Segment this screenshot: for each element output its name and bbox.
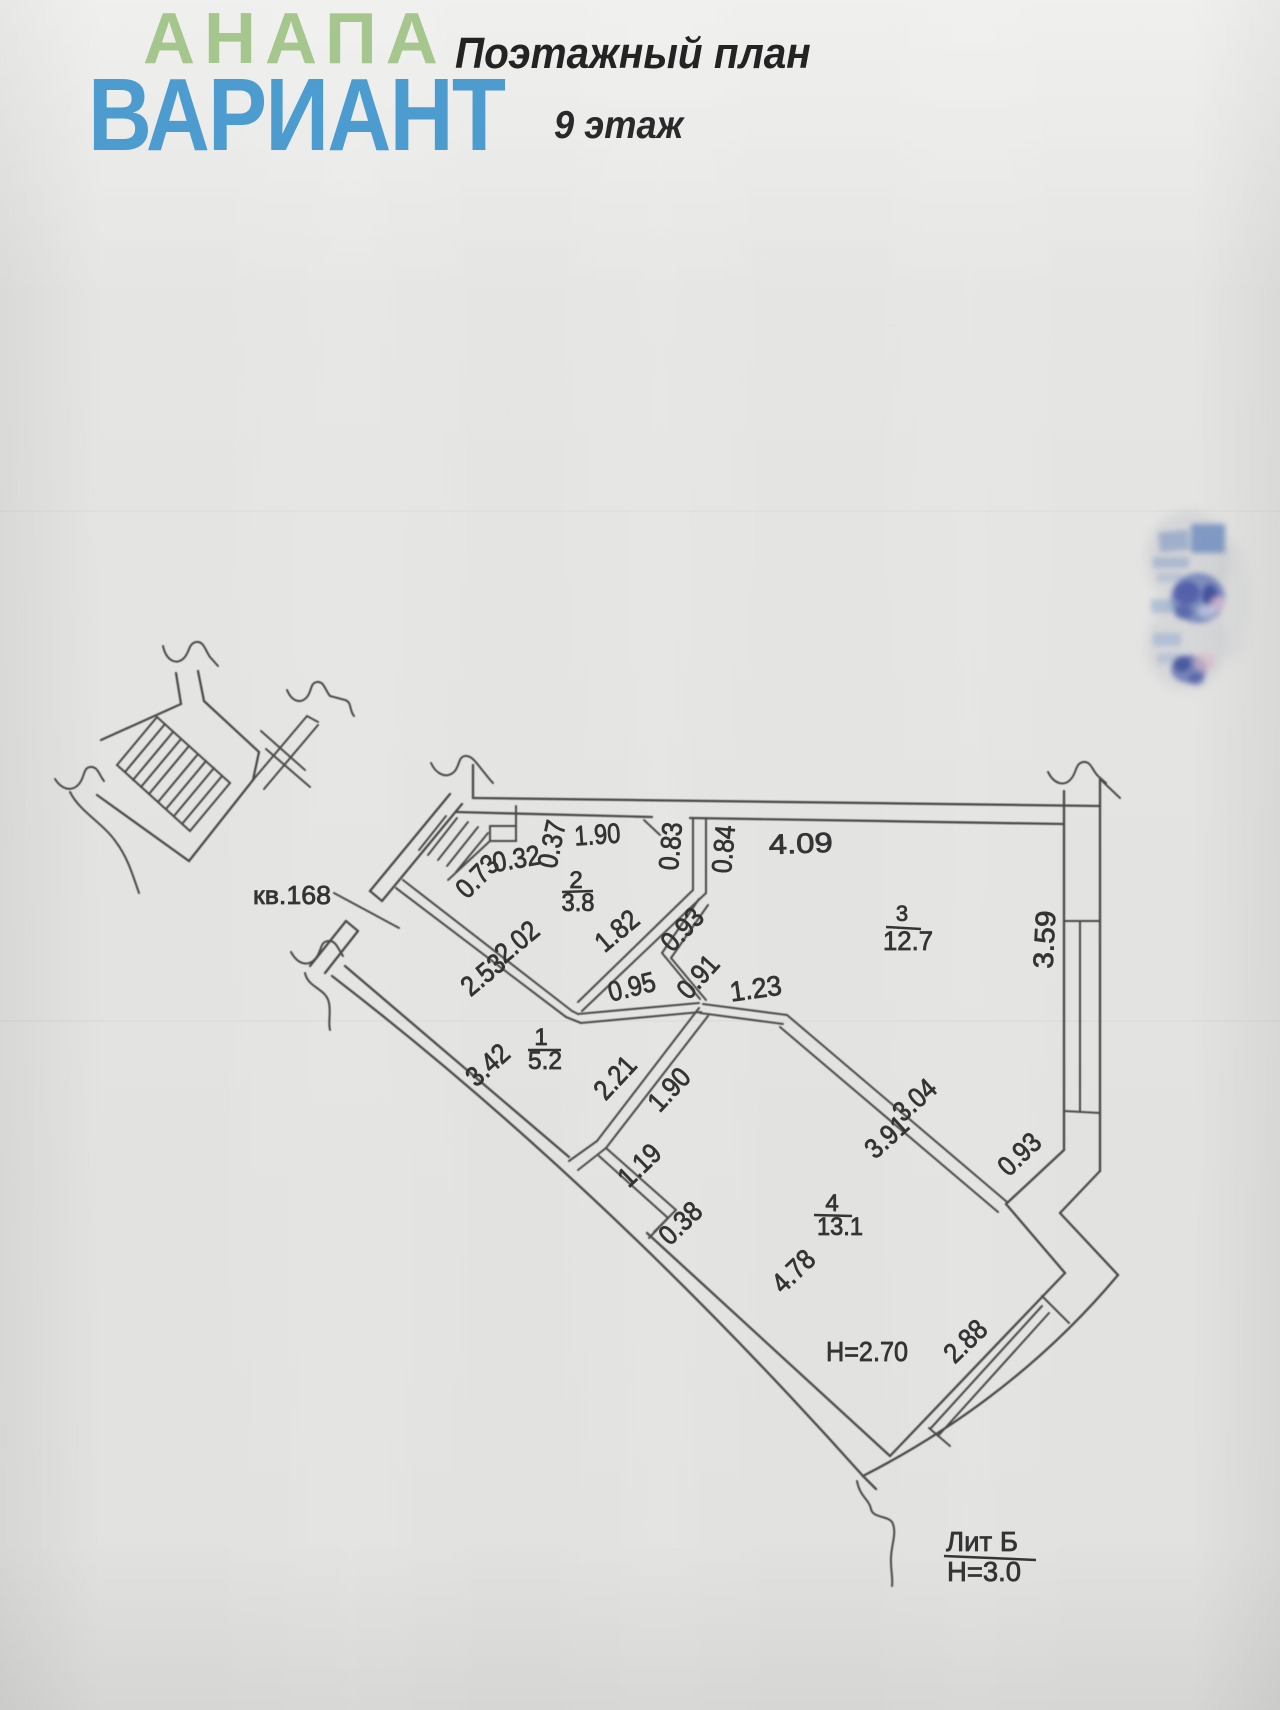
svg-text:4.09: 4.09 bbox=[768, 827, 833, 860]
svg-text:0.84: 0.84 bbox=[706, 824, 741, 875]
svg-text:Лит Б: Лит Б bbox=[946, 1526, 1018, 1557]
svg-text:кв.168: кв.168 bbox=[253, 880, 331, 910]
svg-text:3.8: 3.8 bbox=[562, 889, 595, 917]
svg-text:5.2: 5.2 bbox=[528, 1047, 562, 1075]
svg-text:13.1: 13.1 bbox=[817, 1213, 863, 1241]
svg-text:Н=2.70: Н=2.70 bbox=[826, 1336, 908, 1367]
svg-text:Н=3.0: Н=3.0 bbox=[947, 1556, 1021, 1587]
svg-text:12.7: 12.7 bbox=[883, 926, 933, 956]
svg-text:3.59: 3.59 bbox=[1028, 910, 1062, 970]
svg-text:3: 3 bbox=[896, 901, 908, 926]
svg-text:9 этаж: 9 этаж bbox=[554, 103, 686, 146]
svg-text:ВАРИАНТ: ВАРИАНТ bbox=[88, 58, 505, 173]
svg-text:0.83: 0.83 bbox=[653, 821, 688, 872]
svg-text:1.90: 1.90 bbox=[573, 817, 621, 851]
svg-text:Поэтажный план: Поэтажный план bbox=[455, 28, 811, 77]
